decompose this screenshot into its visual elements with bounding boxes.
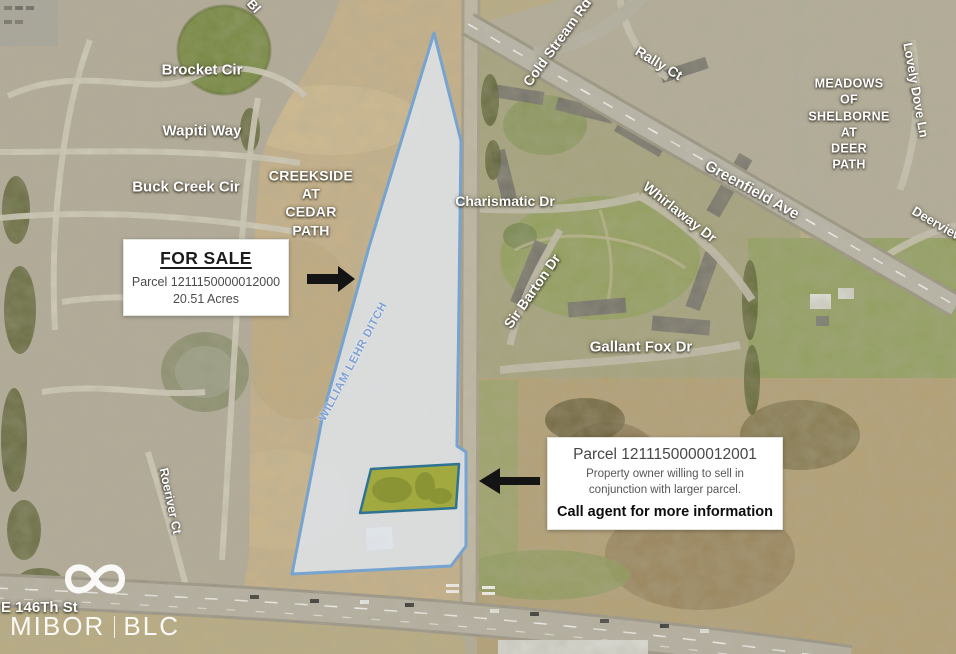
logo-text-right: BLC bbox=[123, 611, 180, 642]
street-label-brocket-cir: Brocket Cir bbox=[162, 63, 243, 78]
logo-text: MIBOR BLC bbox=[10, 611, 180, 642]
aerial-map-view: Brocket Cir Wapiti Way Buck Creek Cir Ch… bbox=[0, 0, 956, 654]
secondary-parcel-boundary bbox=[360, 464, 459, 513]
for-sale-title: FOR SALE bbox=[130, 248, 282, 269]
street-label-wapiti-way: Wapiti Way bbox=[163, 124, 242, 139]
mibor-blc-logo: MIBOR BLC bbox=[10, 553, 180, 642]
street-label-charismatic-dr: Charismatic Dr bbox=[455, 194, 555, 208]
street-label-buck-creek-cir: Buck Creek Cir bbox=[132, 180, 240, 195]
secondary-parcel-number: Parcel 1211150000012001 bbox=[554, 446, 776, 464]
neighborhood-label-meadows: MEADOWS OF SHELBORNE AT DEER PATH bbox=[808, 75, 889, 173]
secondary-parcel-callout: Parcel 1211150000012001 Property owner w… bbox=[547, 437, 783, 530]
secondary-parcel-note: Property owner willing to sell in conjun… bbox=[565, 467, 765, 498]
street-label-gallant-fox-dr: Gallant Fox Dr bbox=[590, 340, 693, 355]
for-sale-acreage: 20.51 Acres bbox=[130, 292, 282, 306]
logo-text-left: MIBOR bbox=[10, 611, 105, 642]
for-sale-parcel-number: Parcel 1211150000012000 bbox=[130, 275, 282, 289]
secondary-parcel-cta: Call agent for more information bbox=[554, 504, 776, 520]
infinity-logo-icon bbox=[41, 553, 149, 605]
for-sale-callout: FOR SALE Parcel 1211150000012000 20.51 A… bbox=[123, 239, 289, 316]
neighborhood-label-creekside: CREEKSIDE AT CEDAR PATH bbox=[269, 167, 353, 240]
